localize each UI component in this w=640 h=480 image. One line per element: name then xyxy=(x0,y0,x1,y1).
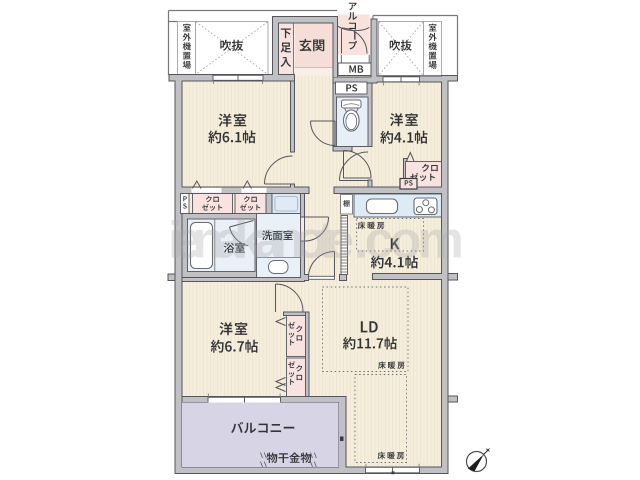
svg-text:ienakanote.com: ienakanote.com xyxy=(168,212,464,270)
